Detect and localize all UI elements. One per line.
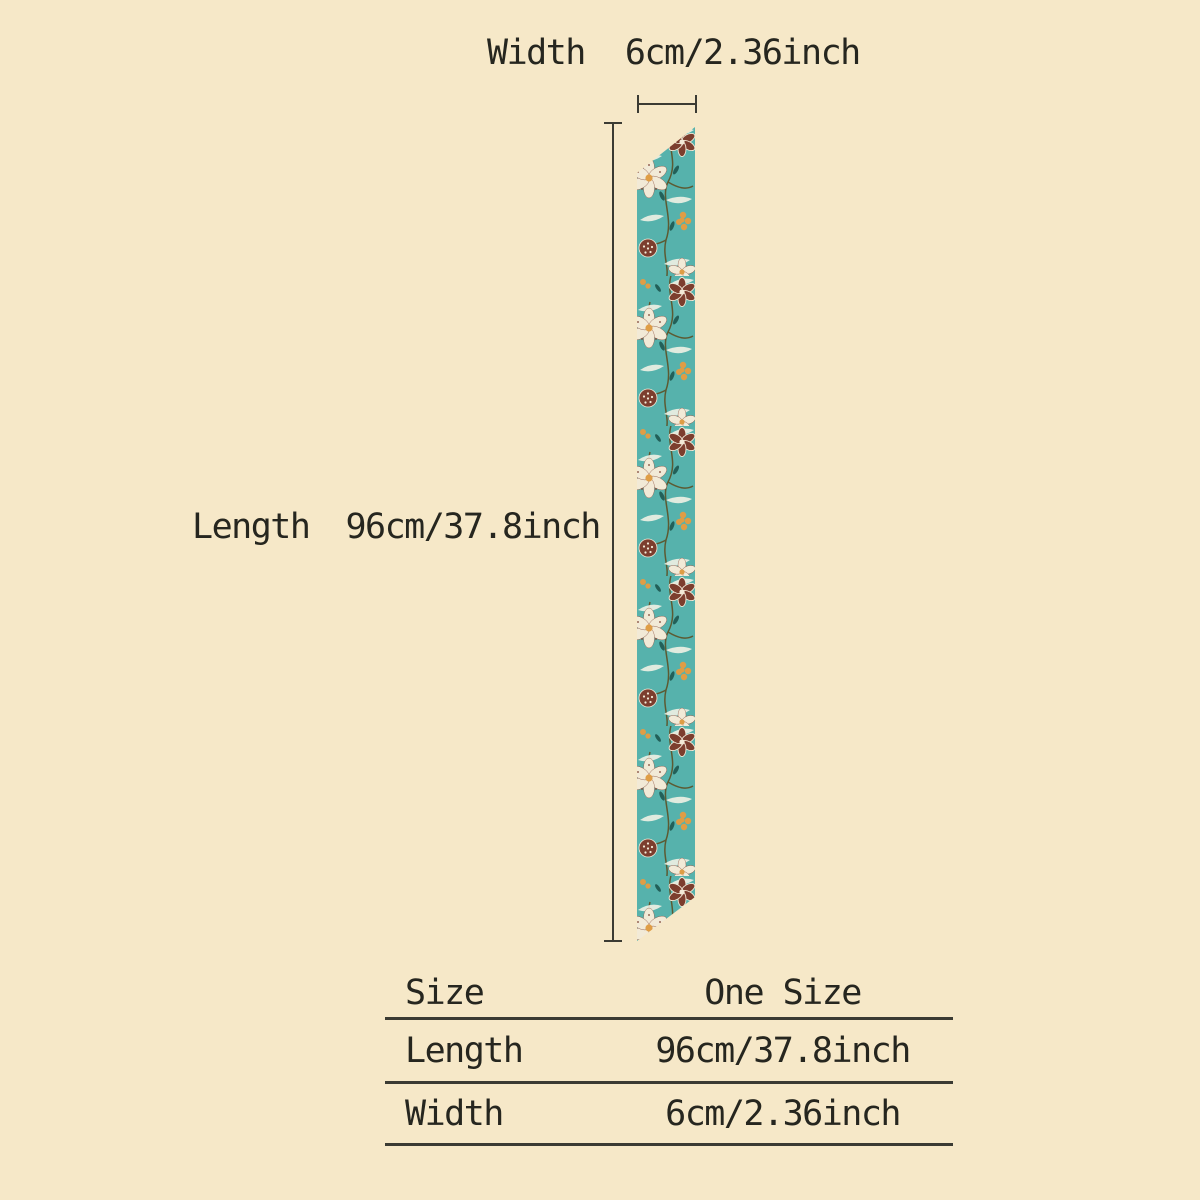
bracket-bar — [637, 103, 697, 105]
table-row-value: 6cm/2.36inch — [612, 1094, 953, 1134]
length-annotation-label: Length — [192, 507, 309, 547]
table-row-value: One Size — [612, 973, 953, 1013]
size-table: Size One Size Length 96cm/37.8inch Width… — [385, 968, 953, 1146]
size-chart-canvas: Width 6cm/2.36inch — [0, 0, 1200, 1200]
length-annotation: Length 96cm/37.8inch — [192, 505, 600, 549]
length-line-bar — [612, 122, 614, 942]
width-measure-bracket — [637, 95, 697, 113]
table-row: Length 96cm/37.8inch — [385, 1020, 953, 1084]
table-row: Size One Size — [385, 968, 953, 1020]
width-annotation-value: 6cm/2.36inch — [625, 33, 860, 73]
table-row-label: Size — [385, 973, 612, 1013]
scarf-graphic — [636, 126, 696, 942]
bracket-right-cap — [695, 95, 697, 113]
table-row-label: Length — [385, 1031, 612, 1071]
table-row-value: 96cm/37.8inch — [612, 1031, 953, 1071]
width-annotation: Width 6cm/2.36inch — [487, 31, 860, 75]
length-line-bottom-cap — [604, 940, 622, 942]
length-annotation-value: 96cm/37.8inch — [345, 507, 599, 547]
length-measure-line — [604, 122, 622, 942]
table-row-label: Width — [385, 1094, 612, 1134]
table-row: Width 6cm/2.36inch — [385, 1084, 953, 1146]
width-annotation-label: Width — [487, 33, 585, 73]
